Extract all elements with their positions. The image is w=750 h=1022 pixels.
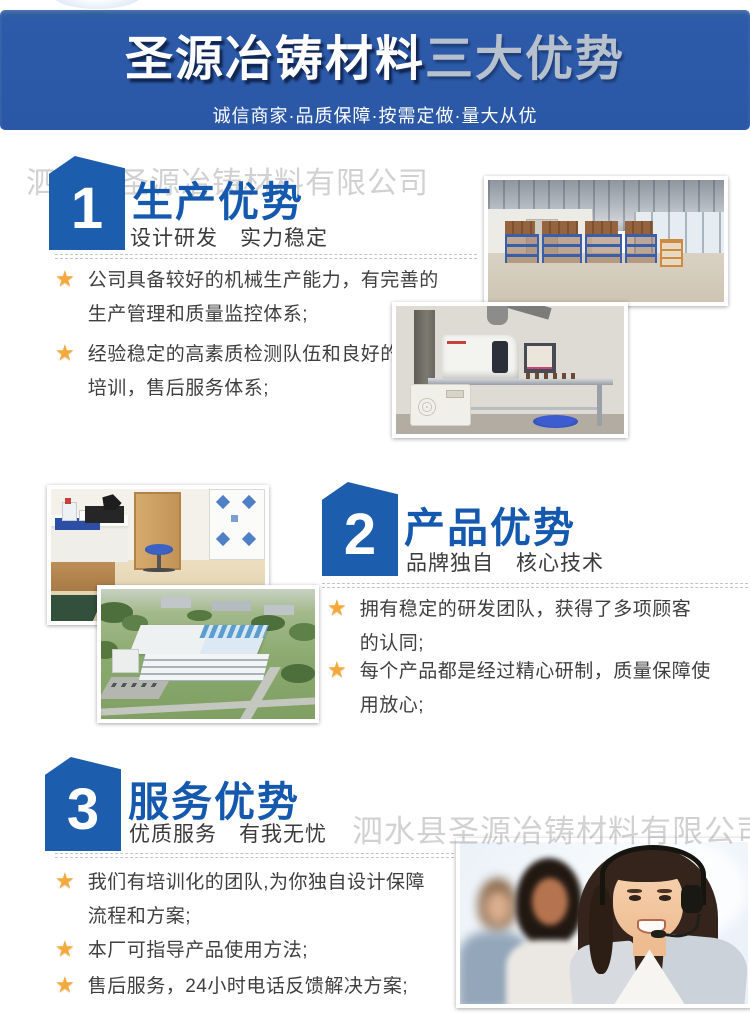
star-icon: ★ <box>55 338 75 368</box>
section1-subtitle: 设计研发 实力稳定 <box>130 228 328 249</box>
instrument-illustration <box>396 306 624 434</box>
section2-bullet-1: ★ 拥有稳定的研发团队，获得了多项顾客的认同; <box>327 593 700 661</box>
warehouse-illustration <box>488 180 724 302</box>
section1-number: 1 <box>71 180 103 238</box>
section1-bullet-2: ★ 经验稳定的高素质检测队伍和良好的上岗培训，售后服务体系; <box>55 338 446 406</box>
factory-aerial-illustration <box>101 589 315 719</box>
star-icon: ★ <box>55 970 75 1000</box>
section3-divider <box>55 853 469 858</box>
star-icon: ★ <box>327 593 347 623</box>
section1-title: 生产优势 <box>132 182 304 223</box>
bullet-text: 每个产品都是经过精心研制，质量保障使用放心; <box>360 655 728 723</box>
watermark-bottom: 泗水县圣源冶铸材料有限公司 <box>352 806 750 851</box>
section2-number-badge: 2 <box>322 482 398 576</box>
warehouse-photo <box>484 176 728 306</box>
bullet-text: 售后服务，24小时电话反馈解决方案; <box>88 970 468 1004</box>
banner-title: 圣源冶铸材料三大优势 <box>0 30 750 90</box>
top-ellipse-decoration <box>52 0 142 9</box>
section3-bullet-2: ★ 本厂可指导产品使用方法; <box>55 934 458 968</box>
section1-divider <box>55 254 477 259</box>
section1-number-badge: 1 <box>49 156 125 250</box>
section2-title: 产品优势 <box>404 508 576 549</box>
star-icon: ★ <box>55 866 75 896</box>
testing-instrument-photo <box>392 302 628 438</box>
banner-subtitle: 诚信商家·品质保障·按需定做·量大从优 <box>0 102 750 128</box>
header-banner: 圣源冶铸材料三大优势 诚信商家·品质保障·按需定做·量大从优 <box>0 10 750 130</box>
section3-bullet-3: ★ 售后服务，24小时电话反馈解决方案; <box>55 970 468 1004</box>
factory-aerial-photo <box>97 585 319 723</box>
customer-service-photo <box>456 838 750 1008</box>
bullet-text: 本厂可指导产品使用方法; <box>88 934 458 968</box>
bullet-text: 我们有培训化的团队,为你独自设计保障流程和方案; <box>88 866 440 934</box>
banner-brand-text: 圣源冶铸材料 <box>125 33 425 86</box>
section3-number-badge: 3 <box>45 757 121 851</box>
star-icon: ★ <box>327 655 347 685</box>
section1-bullet-1: ★ 公司具备较好的机械生产能力，有完善的生产管理和质量监控体系; <box>55 264 446 332</box>
promo-page: 圣源冶铸材料三大优势 诚信商家·品质保障·按需定做·量大从优 泗水县圣源冶铸材料… <box>0 0 750 1022</box>
section2-number: 2 <box>344 506 376 564</box>
section3-bullet-1: ★ 我们有培训化的团队,为你独自设计保障流程和方案; <box>55 866 440 934</box>
customer-service-illustration <box>460 842 748 1004</box>
section2-divider <box>322 583 748 588</box>
banner-suffix-text: 三大优势 <box>425 33 625 86</box>
star-icon: ★ <box>55 264 75 294</box>
bullet-text: 拥有稳定的研发团队，获得了多项顾客的认同; <box>360 593 700 661</box>
section3-title: 服务优势 <box>128 782 300 823</box>
headset-agent-figure <box>567 844 748 1004</box>
section2-subtitle: 品牌独自 核心技术 <box>406 553 604 574</box>
star-icon: ★ <box>55 934 75 964</box>
section2-bullet-2: ★ 每个产品都是经过精心研制，质量保障使用放心; <box>327 655 728 723</box>
section3-subtitle: 优质服务 有我无忧 <box>129 824 327 845</box>
section3-number: 3 <box>67 781 99 839</box>
